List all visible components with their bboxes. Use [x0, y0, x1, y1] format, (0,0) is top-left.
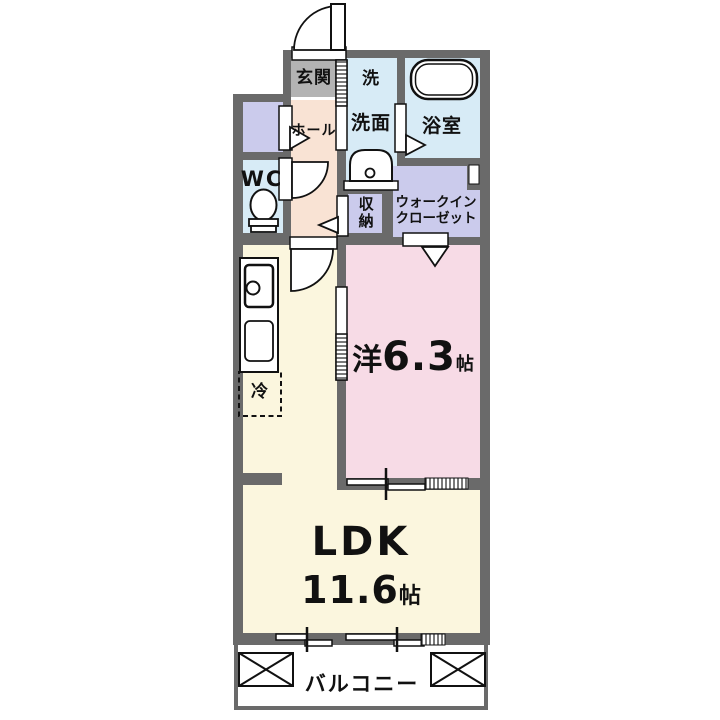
- washroom-label: 洗面: [351, 113, 391, 135]
- ldk-window-left-panel-2: [305, 640, 332, 646]
- wic-label-line1: ウォークイン: [396, 194, 477, 210]
- wc-label: WC: [241, 167, 284, 191]
- wic-door: [403, 233, 448, 246]
- ldk-size: 11.6: [301, 568, 399, 612]
- kitchen-wall-stub: [243, 473, 282, 485]
- kitchen-faucet-icon: [247, 282, 260, 295]
- toilet-icon: [249, 190, 278, 233]
- western-ldk-door-hatch: [425, 478, 468, 489]
- balcony-label: バルコニー: [305, 672, 420, 696]
- washroom-slider-hatch: [336, 60, 347, 106]
- western-room-label: 洋6.3帖: [352, 334, 474, 380]
- floor-plan: 玄関 ホール 洗 洗面 浴室 WC 収納 ウォークイン クローゼット 洋6.3帖…: [0, 0, 720, 720]
- western-ldk-door-panel-2: [388, 484, 425, 490]
- kitchen-counter-icon: [240, 258, 278, 372]
- washer-label: 洗: [362, 70, 380, 90]
- bathroom-label: 浴室: [422, 116, 462, 138]
- bathtub-icon: [411, 60, 477, 99]
- entrance-door-leaf: [331, 4, 345, 50]
- hall-ldk-threshold: [290, 237, 337, 249]
- western-room-unit: 帖: [456, 354, 474, 375]
- hall-label: ホール: [292, 123, 337, 139]
- bathroom-door-jamb: [395, 104, 406, 152]
- genkan-step: [291, 97, 337, 100]
- wic-label-line2: クローゼット: [396, 210, 477, 226]
- storage-label: 収納: [356, 196, 373, 230]
- western-room-size: 6.3: [382, 334, 456, 380]
- washbasin-icon: [344, 150, 398, 190]
- hall-closet-floor: [243, 102, 283, 152]
- ldk-unit: 帖: [399, 584, 421, 609]
- ldk-window-left-panel-1: [276, 634, 307, 640]
- genkan-label: 玄関: [296, 69, 332, 89]
- balcony-unit-right-icon: [431, 653, 485, 686]
- kitchen-stove-icon: [245, 321, 273, 361]
- wic-label: ウォークイン クローゼット: [396, 195, 477, 226]
- ldk-size-label: 11.6帖: [301, 569, 421, 613]
- western-slider-hatch: [336, 334, 347, 380]
- ldk-window-right-panel-2: [394, 640, 424, 646]
- ldk-window-right-hatch: [421, 634, 445, 645]
- refrigerator-label: 冷: [251, 383, 269, 403]
- wic-floor-upper: [393, 166, 467, 192]
- ldk-label: LDK: [312, 519, 411, 565]
- ldk-window-right-panel-1: [346, 634, 397, 640]
- balcony-unit-left-icon: [239, 653, 293, 686]
- western-ldk-door-panel-1: [347, 479, 388, 485]
- western-room-prefix: 洋: [352, 343, 382, 378]
- wic-window: [469, 165, 479, 184]
